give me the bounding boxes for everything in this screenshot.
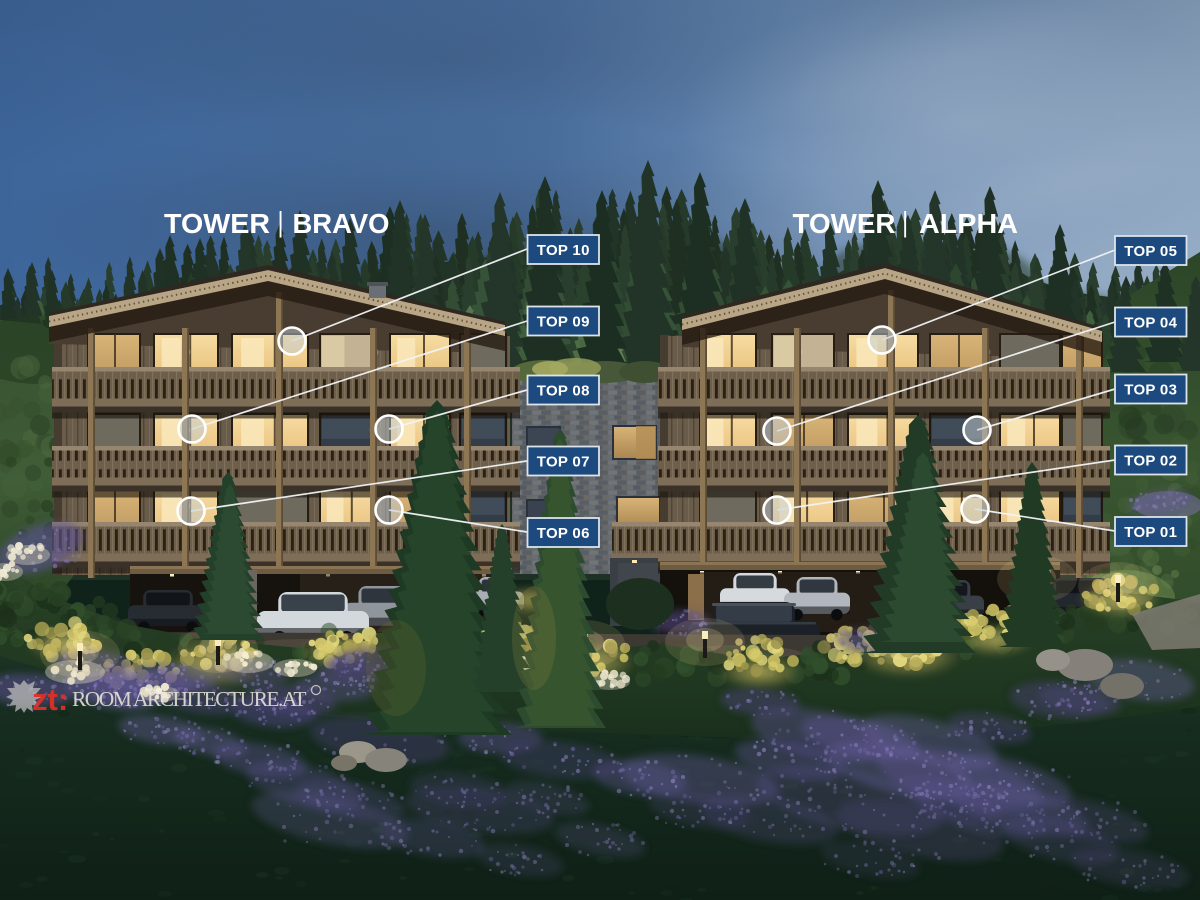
svg-text:TOP 08: TOP 08 bbox=[537, 383, 590, 400]
svg-text:TOP 09: TOP 09 bbox=[537, 314, 590, 331]
svg-text:ALPHA: ALPHA bbox=[919, 208, 1018, 239]
svg-text:TOP 06: TOP 06 bbox=[537, 525, 590, 542]
svg-text:TOWER: TOWER bbox=[793, 208, 896, 239]
svg-text:TOP 01: TOP 01 bbox=[1124, 524, 1177, 541]
svg-text:BRAVO: BRAVO bbox=[293, 208, 390, 239]
svg-text:zt:: zt: bbox=[32, 682, 68, 717]
svg-text:TOP 03: TOP 03 bbox=[1124, 382, 1177, 399]
svg-text:TOP 05: TOP 05 bbox=[1124, 243, 1177, 260]
svg-text:TOP 07: TOP 07 bbox=[537, 454, 590, 471]
svg-text:TOP 04: TOP 04 bbox=[1124, 315, 1177, 332]
svg-text:TOP 10: TOP 10 bbox=[537, 242, 590, 259]
svg-text:ROOM ARCHITECTURE.AT: ROOM ARCHITECTURE.AT bbox=[72, 687, 308, 711]
svg-text:TOWER: TOWER bbox=[164, 208, 270, 239]
svg-text:TOP 02: TOP 02 bbox=[1124, 453, 1177, 470]
